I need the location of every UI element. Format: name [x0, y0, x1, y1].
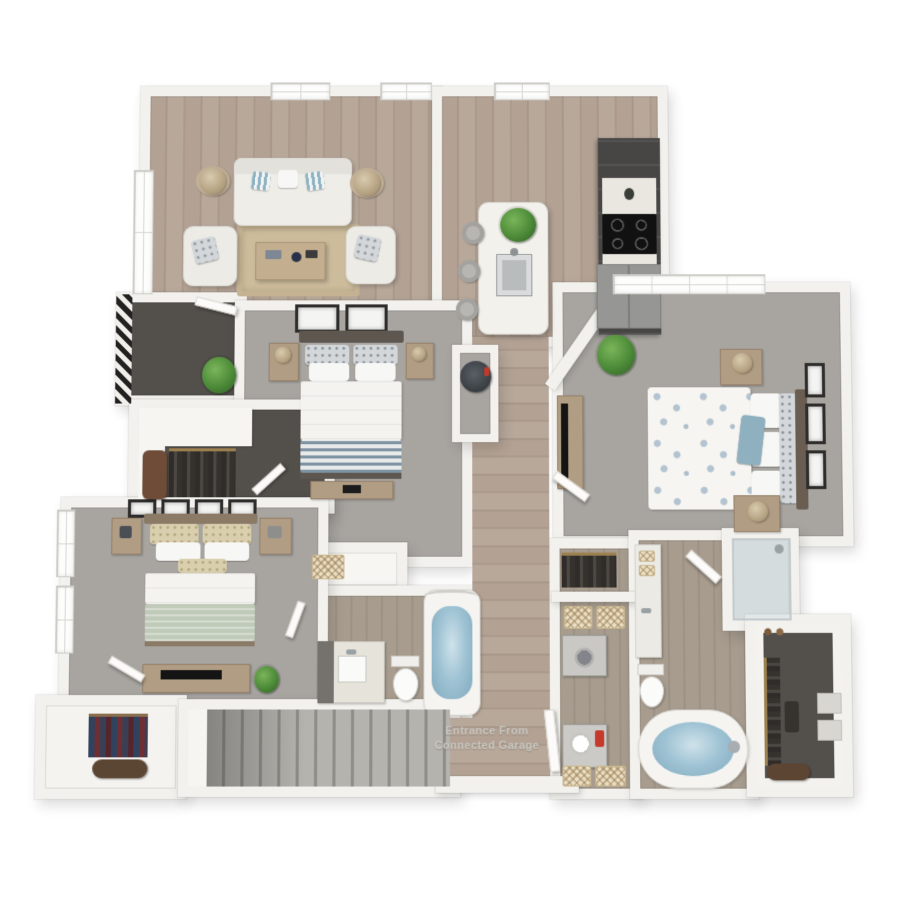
- bedroom-middle-duvet: [300, 381, 401, 440]
- kitchen-window: [494, 82, 550, 100]
- armchair-right-pillow: [353, 234, 382, 263]
- bedroom-lower-pillow-pat-1: [150, 524, 199, 545]
- primary-lamp-lower: [748, 501, 768, 521]
- laundry-shelf-basket-2: [596, 606, 625, 629]
- hall-bath-sink: [338, 656, 367, 683]
- cooktop: [602, 214, 656, 254]
- primary-art-2: [805, 404, 826, 445]
- front-closet-bench: [142, 450, 167, 499]
- primary-plant: [597, 335, 636, 375]
- bedroom-middle-footboard: [300, 473, 401, 479]
- laundry-floor-basket-1: [562, 766, 591, 787]
- water-heater-valve: [484, 367, 489, 376]
- living-window-top-1: [270, 82, 330, 100]
- bedroom-middle-pillow-pat-1: [305, 345, 349, 365]
- bedroom-lower-duvet: [145, 573, 255, 604]
- bedroom-lower-window-2: [55, 585, 74, 653]
- primary-closet-garment: [785, 701, 800, 732]
- coffee-table-tray: [305, 250, 317, 258]
- bedroom-middle-dresser-decor: [343, 485, 361, 493]
- hall-bathtub-water: [432, 606, 473, 699]
- primary-window: [613, 274, 766, 294]
- primary-art-1: [805, 363, 826, 397]
- bedroom-lower-nightstand-decor: [119, 526, 131, 538]
- bedroom-lower-plant: [254, 666, 279, 693]
- bedroom-middle-lamp-left: [275, 347, 291, 363]
- floorplan: Entrance From Connected Garage: [0, 1, 900, 900]
- floor-lamp-left: [200, 168, 226, 194]
- primary-vanity-towel-2: [639, 565, 655, 576]
- hall-toilet-tank: [391, 656, 420, 667]
- primary-closet-clothes: [764, 658, 782, 766]
- bedroom-middle-lamp-right: [412, 347, 426, 361]
- barstool-1: [462, 222, 484, 244]
- entrance-label: Entrance From Connected Garage: [401, 724, 573, 753]
- primary-closet-shoes: [761, 627, 788, 637]
- bedroom-lower-tv: [161, 670, 222, 679]
- hall-shower-curtain-rod: [424, 590, 479, 604]
- room-utility-closet: [452, 345, 498, 442]
- bedroom-middle-pillow-1: [309, 363, 349, 381]
- bedroom-lower-sage-blanket: [145, 604, 255, 641]
- bedroom-lower-headboard: [144, 514, 258, 524]
- floor-lamp-right: [354, 170, 380, 196]
- primary-tub-water: [652, 722, 734, 776]
- primary-closet-bag: [767, 764, 810, 781]
- entrance-label-line1: Entrance From: [401, 724, 573, 739]
- sofa-pillow-right: [305, 171, 325, 191]
- detergent-bottle: [595, 730, 604, 747]
- laundry-closet-clothes: [562, 553, 617, 588]
- front-closet-clothes: [169, 448, 236, 497]
- bedroom-lower-window-1: [56, 510, 75, 578]
- bedroom-middle-art-2: [345, 304, 387, 332]
- primary-art-3: [806, 450, 827, 489]
- entrance-label-line2: Connected Garage: [401, 739, 573, 754]
- primary-toilet-tank: [637, 664, 664, 675]
- coffee-table: [255, 242, 325, 280]
- balcony-railing: [115, 294, 132, 403]
- laundry-floor-basket-2: [595, 766, 626, 787]
- bedroom-middle-pillow-pat-2: [353, 345, 397, 365]
- primary-vanity-faucet: [641, 608, 651, 613]
- island-faucet: [510, 248, 518, 256]
- barstool-3: [456, 298, 478, 320]
- barstool-2: [458, 260, 480, 282]
- entry-bottom-wall: [436, 776, 579, 793]
- primary-closet-box-2: [817, 720, 842, 741]
- bedroom-middle-striped-blanket: [300, 440, 401, 473]
- counter-decor: [624, 188, 634, 200]
- hall-bath-vanity-side: [317, 641, 334, 703]
- primary-lamp-upper: [732, 353, 752, 373]
- floorplan-stage: Entrance From Connected Garage: [0, 0, 900, 900]
- living-window-top-2: [380, 82, 432, 100]
- linen-basket: [312, 555, 345, 580]
- laundry-shelf-basket-1: [564, 606, 593, 629]
- bedroom-lower-pillow-lumbar: [178, 559, 227, 573]
- balcony-plant: [202, 357, 237, 393]
- hall-bath-faucet: [346, 649, 356, 654]
- island-sink: [496, 254, 532, 296]
- stair-landing: [188, 710, 207, 787]
- coffee-table-vase: [291, 252, 301, 262]
- bedroom-lower-clock: [268, 526, 282, 538]
- island-plant: [500, 208, 536, 242]
- primary-closet-box-1: [817, 693, 842, 714]
- primary-bed-duvet: [648, 387, 752, 509]
- living-window-left: [132, 170, 153, 294]
- bedroom-middle-art-1: [295, 304, 339, 332]
- sofa-pillow-center: [278, 170, 298, 188]
- kitchen-counter-lower: [603, 254, 657, 264]
- bedroom-lower-footboard: [145, 641, 255, 646]
- coffee-table-books: [265, 250, 281, 259]
- laundry-divider-wall: [552, 592, 639, 602]
- shower-head: [775, 544, 784, 553]
- primary-vanity-towel-1: [639, 551, 655, 562]
- primary-tub-faucet: [728, 741, 740, 753]
- coat-closet-duffel-bag: [92, 759, 147, 778]
- primary-tv: [561, 404, 568, 479]
- bedroom-lower-pillow-pat-2: [203, 524, 252, 545]
- water-heater: [460, 361, 491, 392]
- washer: [562, 635, 607, 676]
- bedroom-middle-pillow-2: [355, 363, 395, 381]
- bedroom-middle-headboard: [299, 331, 404, 343]
- coat-closet-coats: [88, 714, 148, 758]
- sofa-pillow-left: [251, 171, 271, 191]
